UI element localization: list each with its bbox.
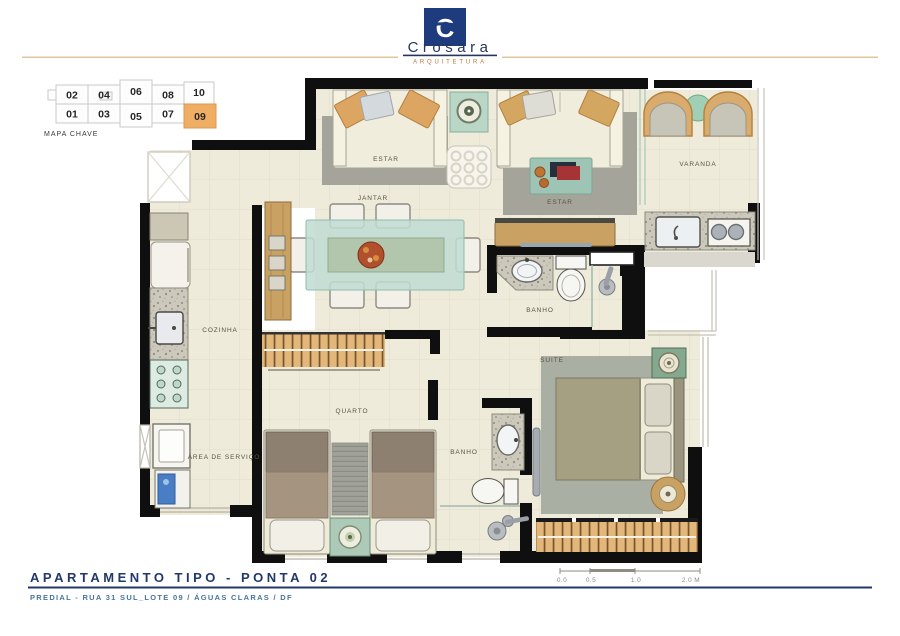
brand-name: Crosara — [408, 39, 493, 56]
tv-rack-body — [495, 222, 615, 246]
toilet-bowl — [557, 269, 585, 301]
room-label-banho-social: BANHO — [526, 307, 554, 314]
bed-blanket-dark — [266, 432, 328, 472]
decor-bowl — [540, 179, 549, 188]
wall-bath2-right-b — [520, 503, 532, 560]
unit-number: 05 — [130, 111, 142, 123]
key-map: 02 04 06 08 10 01 03 05 07 09 MAPA CHAVE — [44, 80, 216, 138]
room-label-varanda: VARANDA — [679, 161, 716, 168]
bed-pillow — [376, 520, 430, 551]
bed-blanket-light — [372, 472, 434, 518]
bed-pillow — [270, 520, 324, 551]
room-label-jantar: JANTAR — [358, 195, 388, 202]
room-label-suite: SUITE — [540, 357, 564, 364]
plant-center — [468, 110, 471, 113]
wall-left-upper — [305, 78, 316, 150]
refrigerator — [151, 242, 190, 288]
wall-left-a — [140, 203, 150, 425]
sideboard-drawer — [269, 276, 285, 290]
floor-plan-sheet: C Crosara ARQUITETURA 02 04 06 08 10 01 … — [0, 0, 900, 636]
wall-top-balcony — [654, 80, 752, 88]
table-lamp-center — [666, 492, 671, 497]
bedroom-runner-rug — [332, 443, 368, 515]
soundbar — [520, 243, 592, 247]
bed-headboard — [674, 374, 684, 482]
sideboard-drawer — [269, 256, 285, 270]
bath-faucet — [514, 438, 518, 442]
brand-header: C Crosara ARQUITETURA — [22, 8, 878, 66]
kitchen-sink — [156, 312, 183, 344]
washing-machine-dial — [163, 479, 169, 485]
kitchen-faucet — [172, 326, 176, 330]
unit-number: 03 — [98, 109, 110, 121]
unit-number-highlighted: 09 — [194, 111, 206, 123]
tv-rack-top — [495, 218, 615, 223]
scale-label: 0.0 — [557, 577, 567, 584]
header-rule-left — [22, 57, 398, 58]
bed-pillow — [645, 384, 671, 426]
armchair-cushion — [710, 103, 746, 136]
wall-kitchen-bedroom-divider — [252, 205, 262, 560]
sofa-right — [497, 89, 623, 168]
table-lamp-center — [667, 361, 671, 365]
suite — [536, 348, 698, 552]
sideboard — [265, 202, 291, 320]
unit-number: 01 — [66, 109, 78, 121]
sheet-title: APARTAMENTO TIPO - PONTA 02 — [30, 570, 331, 585]
header-rule-right — [502, 57, 878, 58]
wall-entry-step — [192, 140, 316, 150]
brand-tagline: ARQUITETURA — [413, 60, 487, 66]
brand-underline — [403, 55, 497, 57]
suite-side-window — [703, 337, 708, 447]
sofa-armrest — [434, 90, 447, 166]
dining-centerpiece — [358, 242, 384, 268]
suite-bay-window-v — [712, 270, 716, 331]
scale-label: 0.5 — [586, 577, 596, 584]
table-lamp-center — [348, 535, 352, 539]
side-table-plant — [450, 92, 488, 132]
shower-niche — [590, 252, 634, 265]
floor-plan-canvas: C Crosara ARQUITETURA 02 04 06 08 10 01 … — [0, 0, 900, 636]
scale-label: 2.0 M — [682, 577, 700, 584]
closet-door-gap — [614, 518, 618, 522]
toilet-tank — [556, 256, 586, 269]
scale-segment-dark — [590, 569, 635, 572]
counter-sink — [656, 217, 700, 247]
toilet-tank — [504, 479, 518, 504]
wall-suite-top — [560, 330, 645, 339]
centerpiece-fruit — [373, 255, 379, 261]
washing-machine-door — [158, 474, 175, 504]
wall-top-main — [310, 78, 648, 89]
wall-bath1-left — [487, 245, 497, 293]
decor-bowl — [535, 167, 545, 177]
bath-faucet — [525, 258, 529, 262]
unit-number: 07 — [162, 109, 174, 121]
bed-pillow — [645, 432, 671, 474]
centerpiece-fruit — [363, 247, 369, 253]
bath-sink — [512, 260, 542, 282]
suite-door-leaf — [533, 428, 540, 496]
coffee-table-books-red — [557, 166, 580, 180]
unit-number: 08 — [162, 90, 174, 102]
wall-quarto-top — [385, 330, 440, 339]
laundry-tub-basin — [159, 430, 184, 462]
sofa-pillow-white — [522, 91, 556, 120]
tv-rack — [495, 218, 615, 247]
coffee-table — [530, 158, 592, 194]
wardrobe-front — [262, 332, 385, 335]
bed-blanket — [556, 378, 640, 480]
scale-bar: 0.0 0.5 1.0 2.0 M — [557, 568, 700, 584]
sheet-subtitle: PREDIAL - RUA 31 SUL_LOTE 09 / ÁGUAS CLA… — [30, 593, 293, 602]
stove — [150, 360, 188, 408]
armchair-cushion — [650, 103, 686, 136]
closet-door-gap — [656, 518, 660, 522]
unit-number: 06 — [130, 86, 142, 98]
unit-number: 02 — [66, 90, 78, 102]
room-label-quarto: QUARTO — [336, 408, 369, 415]
key-map-caption: MAPA CHAVE — [44, 131, 98, 138]
kitchen — [148, 213, 190, 408]
toilet-bowl — [472, 479, 504, 504]
room-label-area-servico: ÁREA DE SERVIÇO — [188, 452, 261, 461]
sideboard-drawer — [269, 236, 285, 250]
footer-rule — [28, 587, 872, 589]
room-label-banho-suite: BANHO — [450, 449, 478, 456]
bed-blanket-dark — [372, 432, 434, 472]
scale-label: 1.0 — [631, 577, 641, 584]
sheet-footer: APARTAMENTO TIPO - PONTA 02 PREDIAL - RU… — [28, 570, 872, 602]
centerpiece-fruit — [368, 258, 373, 263]
unit-number: 04 — [98, 90, 110, 102]
room-label-estar-left: ESTAR — [373, 156, 399, 163]
room-label-estar-right: ESTAR — [547, 199, 573, 206]
cooktop-burner — [729, 225, 744, 240]
unit-number: 10 — [193, 87, 205, 99]
cooktop-burner — [712, 225, 727, 240]
kitchen-cabinet — [150, 213, 188, 240]
closet-door-gap — [572, 518, 576, 522]
shower-head-center — [494, 528, 501, 535]
pouf-ottoman — [447, 146, 491, 188]
bed-blanket-light — [266, 472, 328, 518]
dining-table-runner — [328, 238, 444, 272]
room-label-cozinha: COZINHA — [202, 327, 238, 334]
key-map-building-edge-left — [48, 90, 56, 100]
counter-shadow — [640, 252, 755, 267]
service-area — [153, 424, 190, 508]
wall-quarto-right-b — [428, 380, 438, 420]
